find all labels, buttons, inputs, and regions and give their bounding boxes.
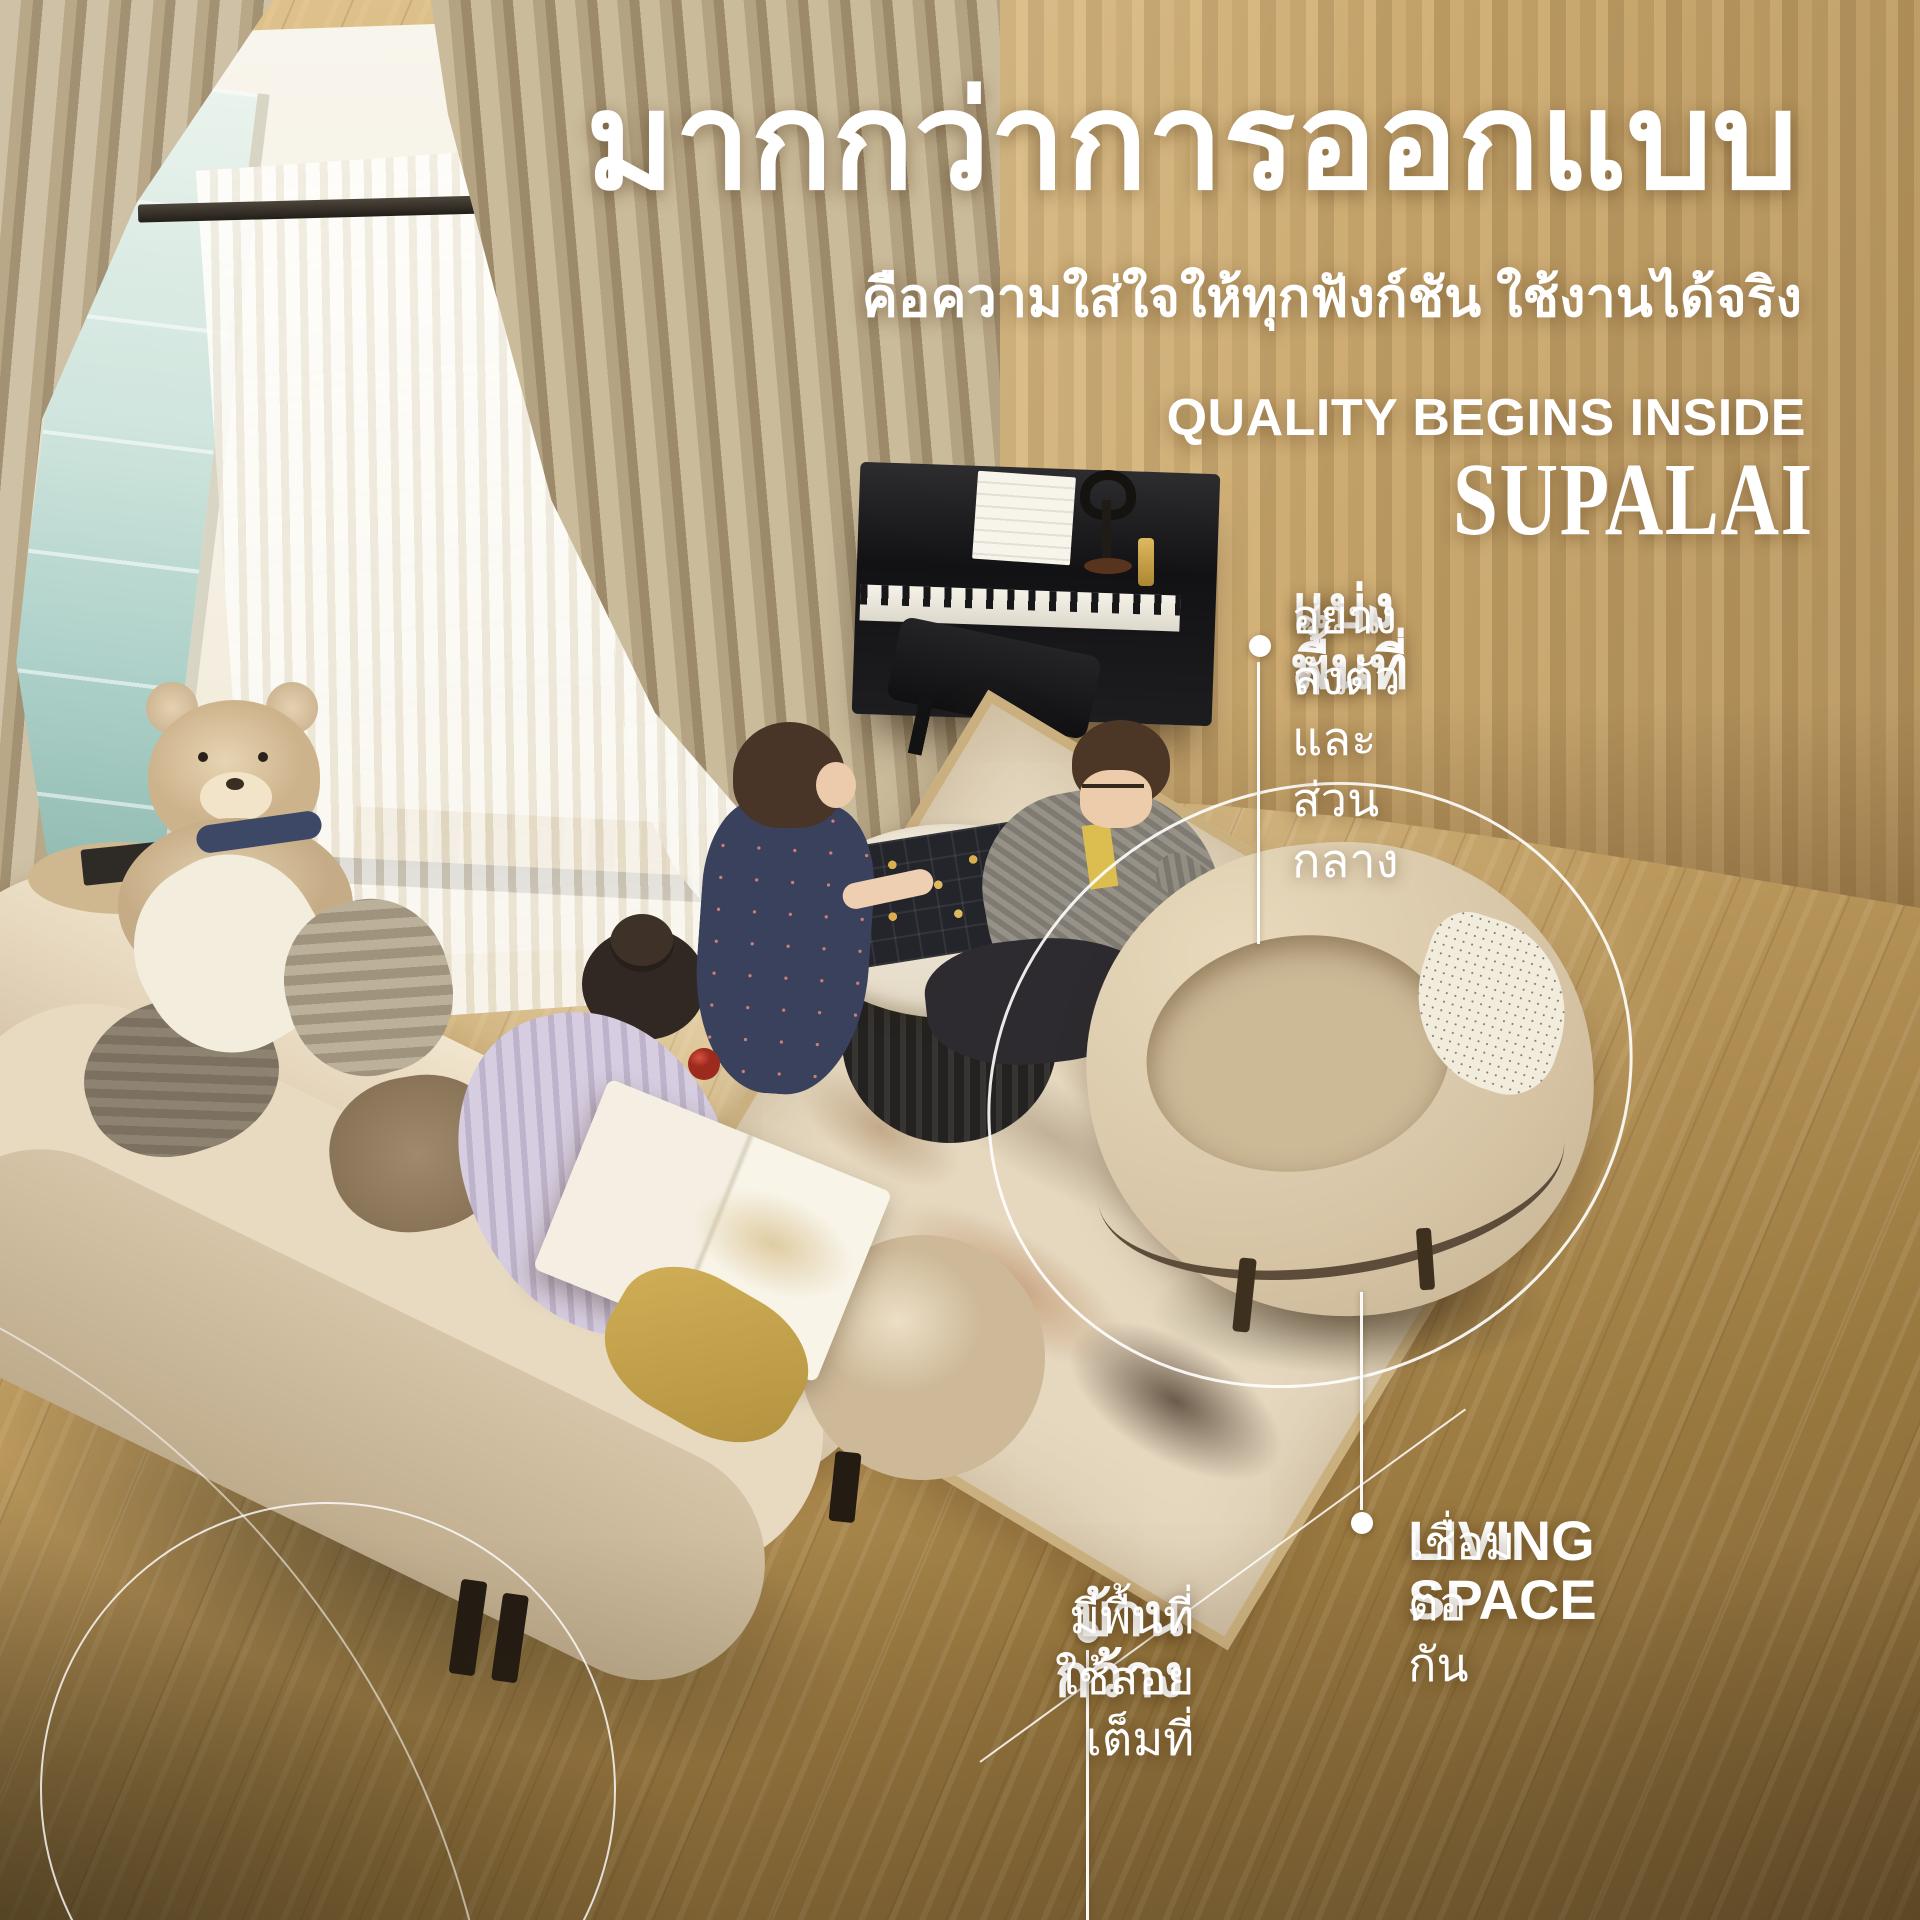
man-face <box>1080 770 1152 828</box>
bullet-dot <box>1351 1512 1373 1534</box>
connector-line <box>1360 1292 1363 1510</box>
teddy-bear-eye <box>198 752 208 762</box>
red-ball <box>688 1048 720 1080</box>
bullet-dot <box>1249 635 1271 657</box>
sheet-music <box>972 471 1076 566</box>
brand-tagline: QUALITY BEGINS INSIDE <box>1167 388 1806 448</box>
headline: มากกว่าการออกแบบ <box>586 64 1798 219</box>
teddy-bear-eye <box>258 752 268 762</box>
man-glasses <box>1082 784 1144 788</box>
annotation-line: มีพื้นที่ใช้สอยเต็มที่ <box>1055 1586 1249 1769</box>
girl-face <box>816 762 856 808</box>
poster-canvas: มากกว่าการออกแบบ คือความใส่ใจให้ทุกฟังก์… <box>0 0 1920 1920</box>
teddy-bear-nose <box>226 778 244 790</box>
subheadline: คือความใส่ใจให้ทุกฟังก์ชัน ใช้งานได้จริง <box>862 254 1802 340</box>
headphone-stand <box>1102 500 1111 566</box>
annotation-line: เชื่อมต่อกัน <box>1408 1512 1515 1695</box>
headphone-stand-base <box>1084 558 1132 574</box>
annotation-line: อย่างลงตัว <box>1292 586 1401 708</box>
woman-hair-bun <box>610 914 674 972</box>
supalai-logo: SUPALAI <box>1453 448 1814 552</box>
connector-line <box>1257 662 1260 944</box>
music-note-ornament <box>1138 538 1154 586</box>
